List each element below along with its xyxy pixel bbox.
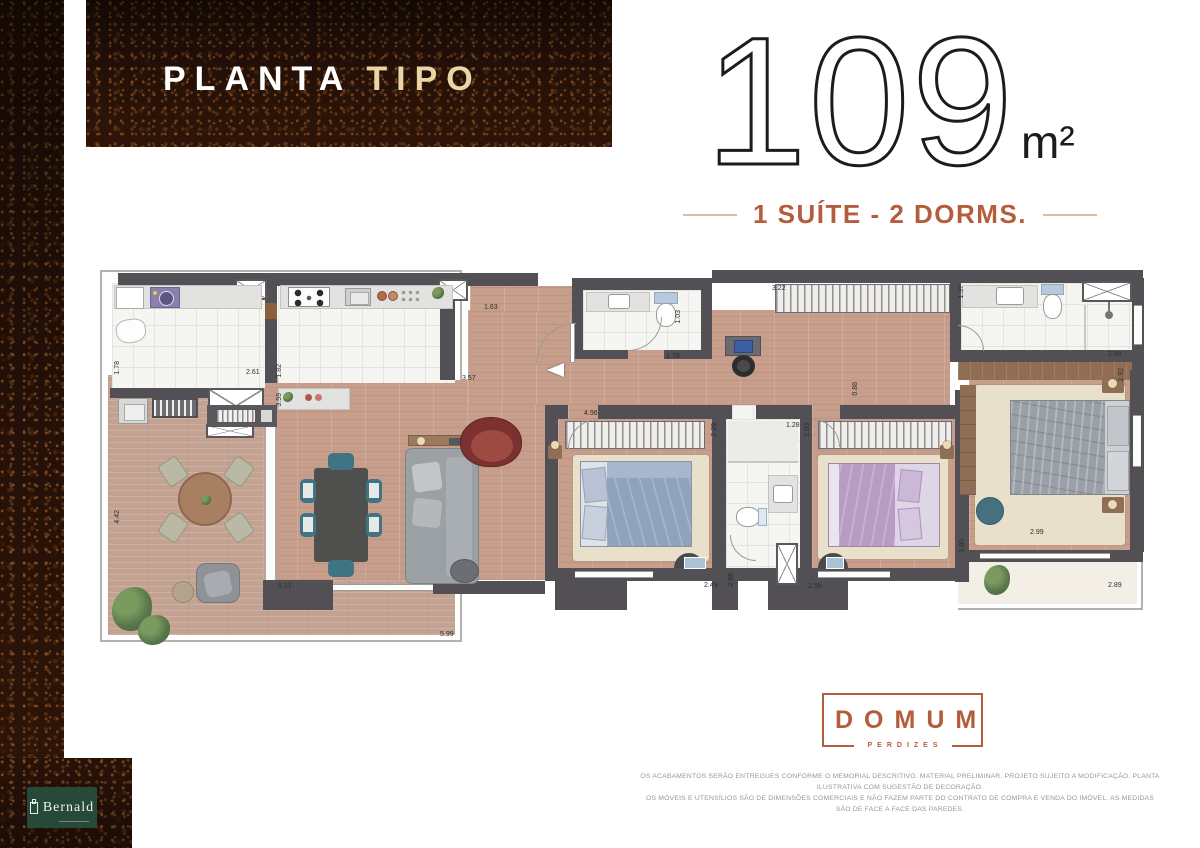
dimension-label: 1.28 [786,422,800,429]
page: PLANTATIPO 109 m² 1 SUÍTE - 2 DORMS. [0,0,1200,848]
subtitle-rule-right [1043,214,1097,216]
area-subtitle: 1 SUÍTE - 2 DORMS. [753,199,1027,230]
dimension-label: 2.49 [704,582,718,589]
dimension-label: 2.61 [246,369,260,376]
disclaimer: OS ACABAMENTOS SERÃO ENTREGUES CONFORME … [640,772,1160,816]
dimension-label: 1.63 [484,304,498,311]
dimension-label: 1.03 [675,310,682,324]
developer-block: Bernald [0,758,132,848]
page-title-primary: PLANTA [163,60,352,98]
header-band: PLANTATIPO [86,0,612,147]
dimension-label: 2.99 [1030,529,1044,536]
page-title-secondary: TIPO [366,60,481,98]
domum-logo-title: DOMUM [824,706,981,735]
page-title: PLANTATIPO [163,60,482,99]
dimension-labels: 1.782.611.823.593.571.631.031.793.221.37… [100,265,1145,650]
dimension-label: 5.99 [440,631,454,638]
subtitle-rule-left [683,214,737,216]
developer-name: Bernald [43,800,94,816]
left-texture-strip [0,0,64,848]
building-icon [30,802,38,814]
dimension-label: 1.82 [276,364,283,378]
domum-logo: DOMUM PERDIZES [822,693,983,747]
dimension-label: 5.31 [278,583,292,590]
dimension-label: 2.03 [804,423,811,437]
domum-logo-subtitle: PERDIZES [853,742,951,749]
area-figure: 109 m² 1 SUÍTE - 2 DORMS. [640,18,1140,238]
developer-tagline-rule [59,821,89,822]
dimension-label: 1.79 [666,353,680,360]
dimension-label: 3.22 [772,285,786,292]
dimension-label: 2.88 [728,573,735,587]
dimension-label: 1.37 [958,285,965,299]
dimension-label: 3.57 [462,375,476,382]
dimension-label: 2.59 [808,583,822,590]
dimension-label: 3.59 [276,393,283,407]
floor-plan: 1.782.611.823.593.571.631.031.793.221.37… [100,265,1145,650]
dimension-label: 0.88 [852,382,859,396]
dimension-label: 2.29 [711,423,718,437]
dimension-label: 2.98 [1108,351,1122,358]
developer-logo: Bernald [27,787,97,828]
area-unit: m² [1021,115,1075,169]
dimension-label: 1.78 [114,361,121,375]
dimension-label: 2.89 [1108,582,1122,589]
disclaimer-line1: OS ACABAMENTOS SERÃO ENTREGUES CONFORME … [640,772,1160,794]
dimension-label: 2.92 [1118,368,1125,382]
dimension-label: 0.80 [959,539,966,553]
dimension-label: 4.42 [114,510,121,524]
disclaimer-line2: OS MÓVEIS E UTENSÍLIOS SÃO DE DIMENSÕES … [640,794,1160,816]
dimension-label: 4.96 [584,410,598,417]
area-value: 109 [705,18,1015,185]
